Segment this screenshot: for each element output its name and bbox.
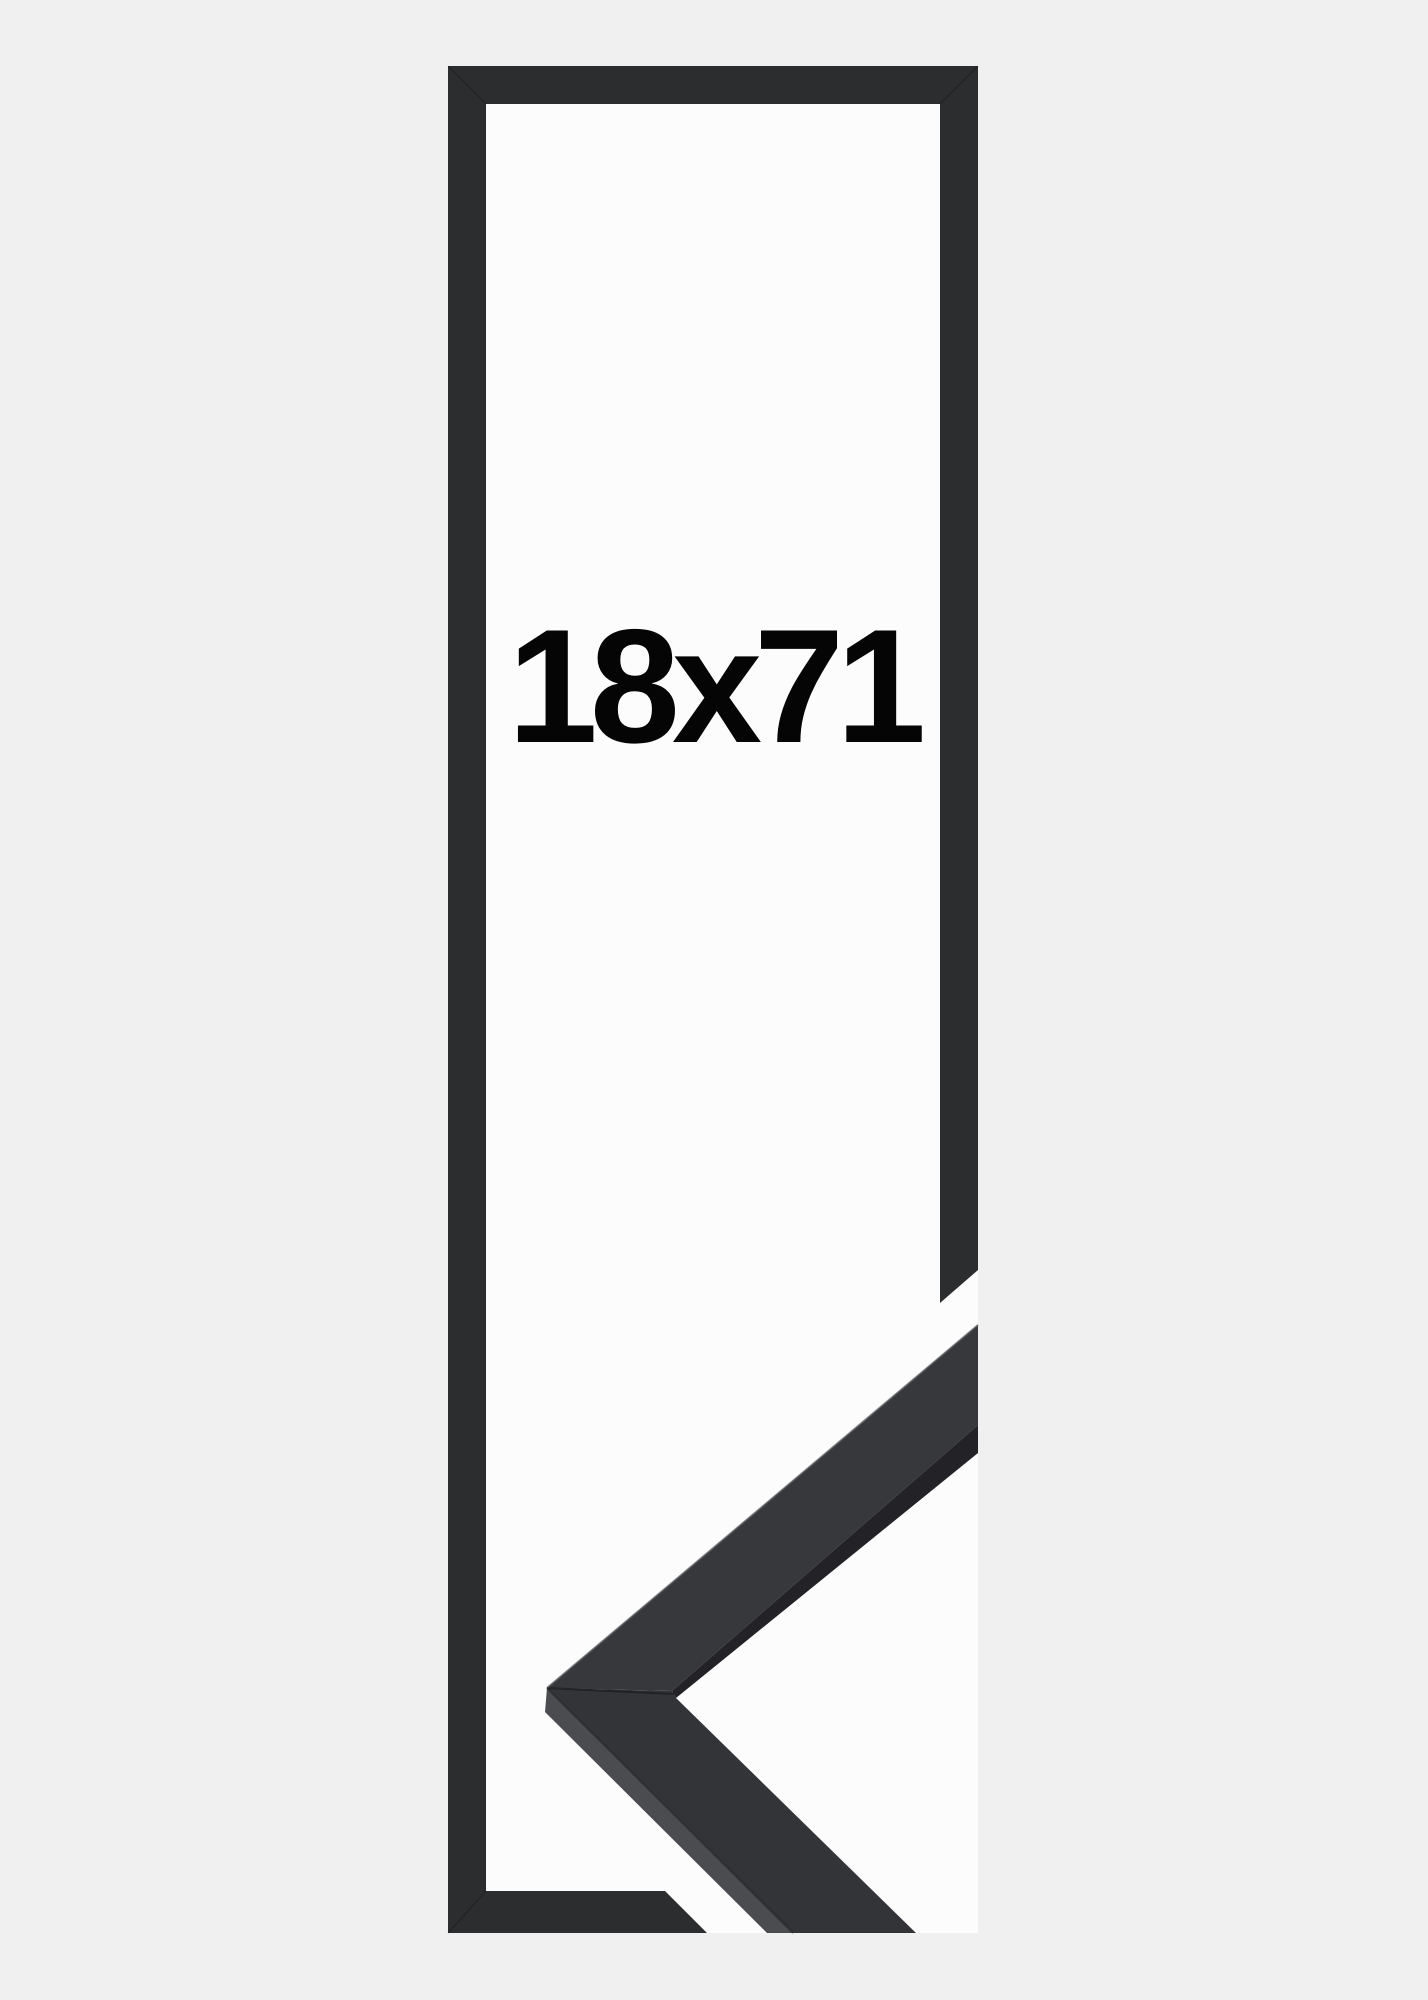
size-label: 18x71 [508,596,922,777]
frame-top-bar [448,66,978,104]
frame-bottom-bar [448,1891,707,1933]
frame-size-product-image: 18x71 [0,0,1428,2000]
frame-left-bar [448,66,486,1933]
frame-right-bar [940,66,978,1303]
